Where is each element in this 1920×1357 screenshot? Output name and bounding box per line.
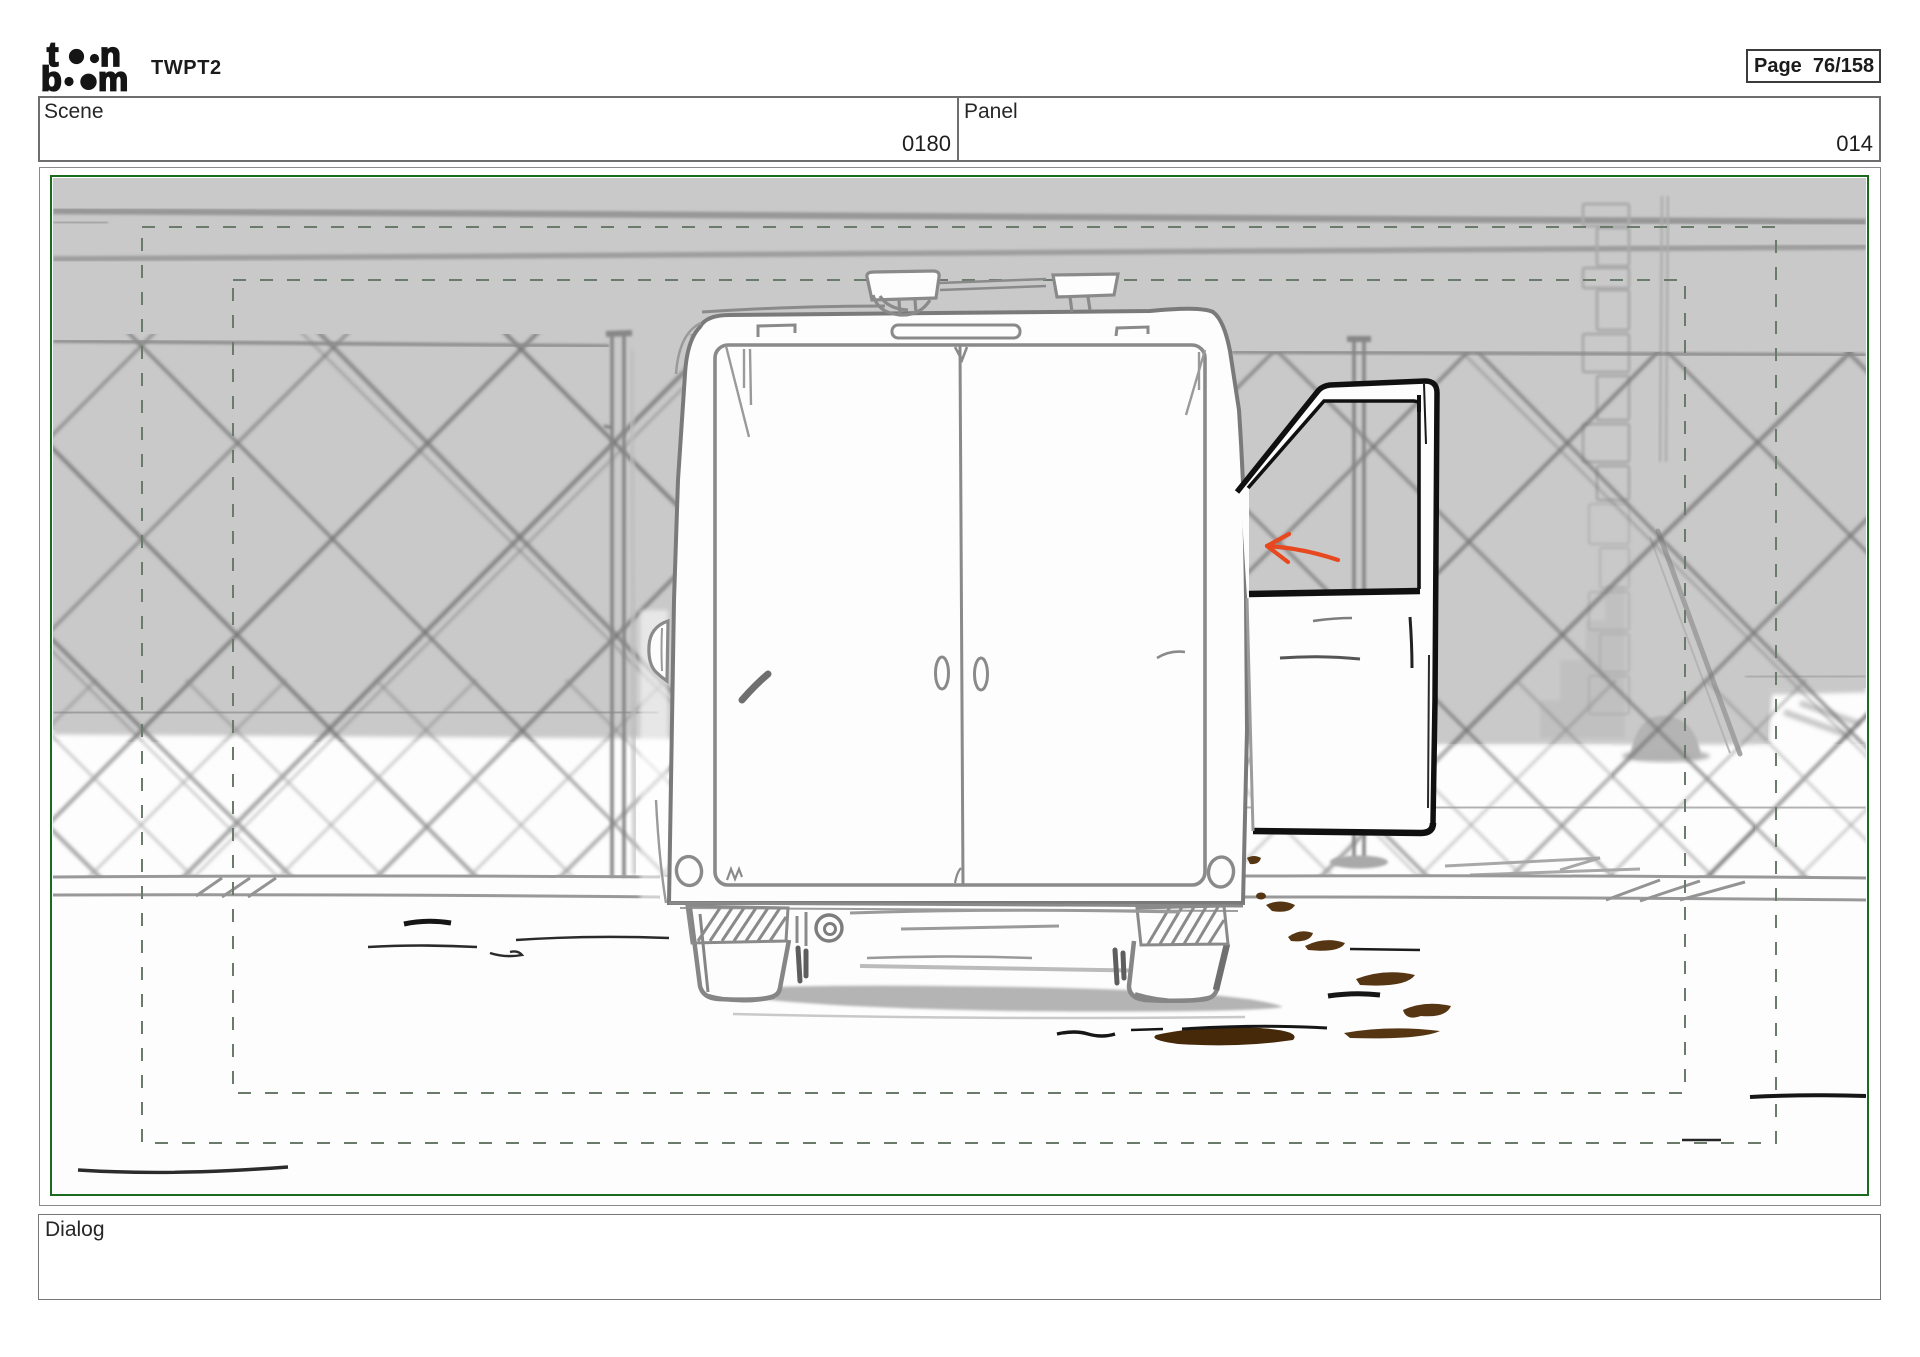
svg-text:m: m xyxy=(98,61,128,97)
svg-text:b: b xyxy=(41,61,62,97)
